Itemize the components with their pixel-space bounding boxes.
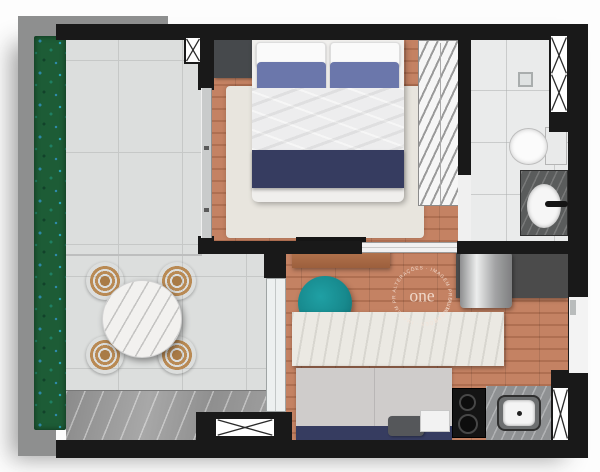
wall-living-bathroom xyxy=(457,241,588,254)
balcony-bedroom-glass-door xyxy=(201,88,212,238)
wall-bedroom-bathroom xyxy=(458,24,471,175)
vertical-garden-hedge xyxy=(34,36,66,430)
kitchen-sink-counter xyxy=(486,386,553,440)
bed-duvet xyxy=(252,88,404,150)
dining-table-marble xyxy=(102,280,182,358)
sofa-tray-white xyxy=(420,410,450,432)
burner xyxy=(459,394,476,411)
wall-bottom xyxy=(56,440,588,458)
entrance-door-opening xyxy=(569,297,588,373)
kitchen-faucet xyxy=(517,411,522,416)
watermark-stamp: ALTERAÇÕES · IMAGEM PRELIMINAR ALTERAÇÕE… xyxy=(384,258,460,334)
bathroom-door-opening xyxy=(458,175,471,241)
watermark-brand: one xyxy=(409,285,434,305)
toilet-tank xyxy=(545,127,567,165)
balcony-floor-upper xyxy=(66,38,202,256)
cooktop xyxy=(452,388,486,438)
wall-bedroom-living xyxy=(212,241,362,254)
sofa-pillow-dark xyxy=(388,416,424,436)
nightstand xyxy=(214,40,254,78)
floor-plan: ALTERAÇÕES · IMAGEM PRELIMINAR ALTERAÇÕE… xyxy=(0,0,600,472)
burner xyxy=(458,414,478,434)
balcony-living-glass-door xyxy=(266,278,286,412)
wardrobe xyxy=(418,40,462,206)
balcony-floor-divider xyxy=(66,254,202,256)
bedroom-corner-window xyxy=(184,36,202,64)
appliance-cylinder xyxy=(460,252,512,308)
bed-blanket-navy xyxy=(252,150,404,188)
shower-drain xyxy=(518,72,533,87)
toilet-bowl xyxy=(509,128,548,165)
entrance-door-leaf xyxy=(570,300,576,315)
sofa xyxy=(296,368,452,440)
kitchen-window xyxy=(551,386,570,442)
wall-living-balcony-stub xyxy=(264,254,286,278)
bathroom-faucet xyxy=(545,201,568,207)
bed xyxy=(252,40,404,202)
wall-top xyxy=(56,24,588,40)
bedroom-living-sliding-door xyxy=(362,242,457,253)
bathroom-window xyxy=(549,34,569,114)
balcony-window xyxy=(214,417,276,438)
